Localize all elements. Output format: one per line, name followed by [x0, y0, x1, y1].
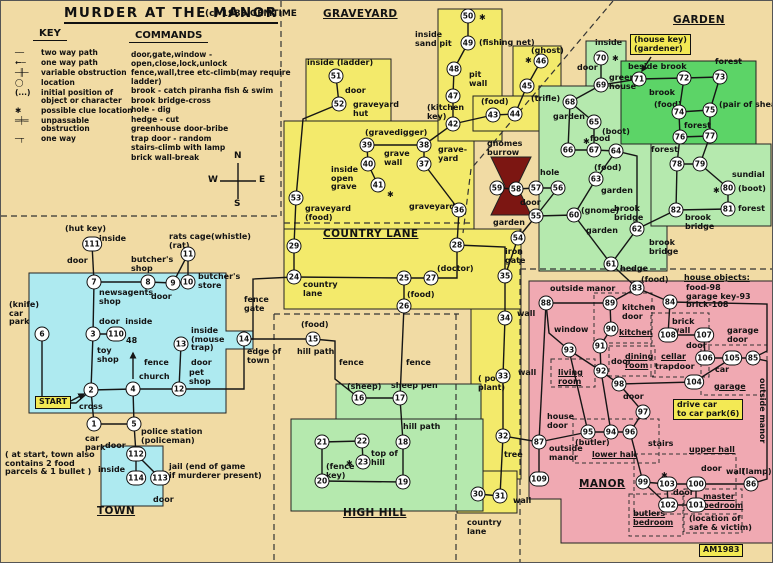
- map-label: inside: [99, 235, 126, 244]
- map-node-111: 111: [82, 237, 102, 252]
- map-node-90: 90: [604, 322, 619, 337]
- map-label: (gravedigger): [365, 129, 427, 138]
- map-label: hill path: [403, 423, 440, 432]
- map-label: kitchen: [619, 329, 652, 338]
- highlight-box: (house key) (gardener): [630, 34, 691, 55]
- map-node-63: 63: [589, 172, 604, 187]
- map-label: (doctor): [437, 265, 474, 274]
- map-node-9: 9: [166, 276, 181, 291]
- map-label: graveyard: [409, 203, 455, 212]
- region-title: COUNTRY LANE: [323, 229, 418, 240]
- key-symbol: ←─: [15, 59, 41, 67]
- map-label: door: [67, 257, 88, 266]
- map-node-97: 97: [636, 405, 651, 420]
- region-title: GRAVEYARD: [323, 9, 398, 20]
- map-node-34: 34: [498, 311, 513, 326]
- map-node-43: 43: [486, 108, 501, 123]
- map-node-27: 27: [424, 271, 439, 286]
- map-node-62: 62: [630, 222, 645, 237]
- map-label: inside sand pit: [415, 31, 452, 48]
- map-node-49: 49: [461, 36, 476, 51]
- map-label: hole: [540, 169, 559, 178]
- map-node-4: 4: [126, 382, 141, 397]
- key-item: (...)initial position of object or chara…: [15, 89, 137, 105]
- map-label: (food): [407, 291, 435, 300]
- highlight-box: drive car to car park(6): [673, 399, 743, 420]
- map-label: lower hall: [592, 451, 636, 460]
- map-label: brook bridge: [614, 205, 643, 222]
- map-node-79: 79: [693, 157, 708, 172]
- region-title: TOWN: [97, 506, 135, 517]
- map-node-112: 112: [126, 447, 146, 462]
- key-item-label: one way: [41, 135, 137, 143]
- map-label: door: [701, 465, 722, 474]
- map-node-70: 70: [594, 51, 609, 66]
- map-label: newsagents shop: [99, 289, 153, 306]
- map-node-12: 12: [172, 382, 187, 397]
- map-label: toy shop: [97, 347, 119, 364]
- map-node-18: 18: [396, 435, 411, 450]
- key-item-label: initial position of object or character: [41, 89, 137, 105]
- map-node-22: 22: [355, 434, 370, 449]
- map-node-23: 23: [356, 455, 371, 470]
- map-node-81: 81: [721, 202, 736, 217]
- compass-north: N: [234, 151, 242, 161]
- map-label: door: [686, 342, 707, 351]
- map-node-3: 3: [86, 327, 101, 342]
- map-label: fence: [339, 359, 364, 368]
- clue-asterisk: ✱: [525, 56, 532, 65]
- map-node-32: 32: [496, 429, 511, 444]
- map-node-11: 11: [181, 247, 196, 262]
- map-node-76: 76: [673, 130, 688, 145]
- map-node-8: 8: [141, 275, 156, 290]
- map-node-80: 80: [721, 181, 736, 196]
- key-symbol: ──: [15, 49, 41, 57]
- map-node-66: 66: [561, 143, 576, 158]
- map-node-95: 95: [581, 425, 596, 440]
- key-item: ──two way path: [15, 49, 137, 57]
- map-label: (knife) car park: [9, 301, 39, 327]
- map-node-55: 55: [529, 209, 544, 224]
- map-node-75: 75: [703, 103, 718, 118]
- map-label: church: [139, 373, 170, 382]
- map-node-85: 85: [746, 351, 761, 366]
- map-node-54: 54: [511, 231, 526, 246]
- map-label: forest: [651, 146, 678, 155]
- map-node-72: 72: [677, 71, 692, 86]
- map-label: forest: [715, 58, 742, 67]
- map-node-82: 82: [669, 203, 684, 218]
- map-node-24: 24: [287, 270, 302, 285]
- map-label: food-98 garage key-93 brick-108: [686, 284, 751, 310]
- map-node-52: 52: [332, 97, 347, 112]
- map-label: car: [715, 366, 729, 375]
- map-label: (boot): [602, 128, 630, 137]
- map-node-10: 10: [181, 275, 196, 290]
- command-line: greenhouse door-bribe: [131, 125, 301, 134]
- map-node-91: 91: [593, 339, 608, 354]
- map-label: (sheep): [347, 383, 381, 392]
- map-node-113: 113: [150, 471, 170, 486]
- map-label: outside manor: [550, 285, 615, 294]
- command-line: brook - catch piranha fish & swim: [131, 87, 301, 96]
- compass-west: W: [208, 175, 218, 185]
- map-label: 48: [126, 337, 137, 346]
- map-node-35: 35: [498, 269, 513, 284]
- command-line: fence,wall,tree etc-climb(may require la…: [131, 69, 301, 86]
- map-label: country lane: [303, 281, 338, 298]
- map-label: forest: [738, 205, 765, 214]
- map-node-30: 30: [471, 487, 486, 502]
- map-node-92: 92: [594, 364, 609, 379]
- game-map: MURDER AT THE MANOR (c) 1983 GEMTIME KEY…: [0, 0, 773, 563]
- map-label: (food): [641, 276, 669, 285]
- map-label: iron gate: [505, 248, 525, 265]
- map-node-29: 29: [287, 239, 302, 254]
- map-node-84: 84: [663, 295, 678, 310]
- command-line: brick wall-break: [131, 154, 301, 163]
- map-label: brook bridge: [649, 239, 678, 256]
- map-label: window: [554, 326, 588, 335]
- map-node-67: 67: [587, 143, 602, 158]
- map-node-5: 5: [127, 417, 142, 432]
- map-node-47: 47: [446, 89, 461, 104]
- map-node-99: 99: [636, 475, 651, 490]
- map-label: pit wall: [469, 71, 487, 88]
- key-item-label: one way path: [41, 59, 137, 67]
- map-node-2: 2: [84, 383, 99, 398]
- map-label: garage door: [727, 327, 759, 344]
- map-label: garden: [586, 227, 618, 236]
- map-label: fence: [144, 359, 169, 368]
- key-item-label: possible clue location: [41, 107, 137, 115]
- map-node-56: 56: [551, 181, 566, 196]
- map-label: hill path: [297, 348, 334, 357]
- map-overlay: MURDER AT THE MANOR (c) 1983 GEMTIME KEY…: [1, 1, 772, 562]
- key-item: ─┬one way: [15, 135, 137, 143]
- map-node-107: 107: [694, 328, 714, 343]
- map-label: top of hill: [371, 450, 398, 467]
- map-label: rats cage(whistle) (rat): [169, 233, 251, 250]
- map-node-73: 73: [713, 70, 728, 85]
- commands-heading: COMMANDS: [129, 30, 208, 43]
- map-node-64: 64: [609, 144, 624, 159]
- map-node-26: 26: [397, 299, 412, 314]
- map-label: inside (ladder): [307, 59, 373, 68]
- map-label: door: [151, 293, 172, 302]
- map-node-15: 15: [306, 332, 321, 347]
- map-node-50: 50: [461, 9, 476, 24]
- map-label: garage: [714, 383, 746, 392]
- map-label: butlers bedroom: [633, 510, 673, 527]
- map-node-36: 36: [452, 203, 467, 218]
- key-symbol: ═╪═: [15, 117, 41, 133]
- map-label: sundial: [732, 171, 765, 180]
- region-title: MANOR: [579, 479, 625, 490]
- map-node-88: 88: [539, 296, 554, 311]
- map-label: trapdoor: [655, 363, 695, 372]
- key-item: ←─one way path: [15, 59, 137, 67]
- key-symbol: ◯: [15, 79, 41, 87]
- region-title: HIGH HILL: [343, 508, 406, 519]
- map-label: inside: [595, 39, 622, 48]
- key-heading: KEY: [33, 28, 67, 41]
- key-item-label: two way path: [41, 49, 137, 57]
- command-line: hole - dig: [131, 106, 301, 115]
- map-node-98: 98: [612, 377, 627, 392]
- map-label: cellar: [661, 353, 686, 362]
- map-node-33: 33: [496, 369, 511, 384]
- command-line: door,gate,window -open,close,lock,unlock: [131, 51, 301, 68]
- map-node-21: 21: [315, 435, 330, 450]
- key-symbol: (...): [15, 89, 41, 105]
- map-label: door: [153, 496, 174, 505]
- commands-list: door,gate,window -open,close,lock,unlock…: [131, 51, 301, 163]
- map-label: wall: [517, 310, 535, 319]
- map-node-101: 101: [686, 498, 706, 513]
- map-node-25: 25: [397, 271, 412, 286]
- map-node-102: 102: [658, 498, 678, 513]
- map-label: master bedroom: [703, 493, 743, 510]
- map-label: country lane: [467, 519, 502, 536]
- highlight-box: START: [35, 396, 71, 409]
- map-node-16: 16: [352, 391, 367, 406]
- map-node-7: 7: [87, 275, 102, 290]
- map-label: graveyard (food): [305, 205, 351, 222]
- key-symbol: ─╫─: [15, 69, 41, 77]
- region-title: GARDEN: [673, 15, 725, 26]
- map-label: (location of safe & victim): [689, 515, 752, 532]
- map-node-105: 105: [722, 351, 742, 366]
- map-node-96: 96: [623, 425, 638, 440]
- map-label: inside: [98, 466, 125, 475]
- map-label: inside (mouse trap): [191, 327, 224, 353]
- map-node-65: 65: [587, 115, 602, 130]
- map-node-39: 39: [360, 138, 375, 153]
- map-node-57: 57: [529, 181, 544, 196]
- map-node-104: 104: [684, 375, 704, 390]
- map-node-58: 58: [509, 182, 524, 197]
- map-label: brook: [649, 89, 675, 98]
- map-node-31: 31: [493, 489, 508, 504]
- map-label: (boot): [738, 185, 766, 194]
- map-node-78: 78: [670, 157, 685, 172]
- map-label: jail (end of game if murderer present): [169, 463, 262, 480]
- map-label: grave wall: [384, 150, 410, 167]
- map-label: (food): [301, 321, 329, 330]
- map-node-59: 59: [490, 181, 505, 196]
- map-label: upper hall: [689, 446, 735, 455]
- map-label: door: [623, 393, 644, 402]
- map-node-114: 114: [126, 471, 146, 486]
- command-line: brook bridge-cross: [131, 97, 301, 106]
- command-line: trap door - random: [131, 135, 301, 144]
- map-label: stairs: [648, 440, 673, 449]
- map-node-69: 69: [594, 78, 609, 93]
- map-label: butcher's store: [198, 273, 240, 290]
- map-node-86: 86: [744, 477, 759, 492]
- copyright-text: (c) 1983 GEMTIME: [205, 9, 297, 19]
- map-node-74: 74: [672, 105, 687, 120]
- map-node-13: 13: [174, 337, 189, 352]
- map-label: fence gate: [244, 296, 269, 313]
- map-label: (fishing net): [479, 39, 535, 48]
- map-label: graveyard hut: [353, 101, 399, 118]
- clue-asterisk: ✱: [612, 54, 619, 63]
- map-label: gnomes burrow: [487, 140, 522, 157]
- map-label: garden: [493, 219, 525, 228]
- map-label: brook bridge: [685, 214, 714, 231]
- map-label: edge of town: [247, 348, 281, 365]
- compass-south: S: [234, 199, 240, 209]
- map-node-44: 44: [508, 107, 523, 122]
- clue-asterisk: ✱: [713, 186, 720, 195]
- map-label: garden: [601, 187, 633, 196]
- map-node-42: 42: [446, 117, 461, 132]
- map-node-60: 60: [567, 208, 582, 223]
- map-label: inside open grave: [331, 166, 358, 192]
- map-node-108: 108: [658, 328, 678, 343]
- map-label: (pair of shears): [719, 101, 773, 110]
- key-item-label: variable obstruction: [41, 69, 137, 77]
- map-label: tree: [504, 451, 523, 460]
- map-node-83: 83: [630, 281, 645, 296]
- key-item: ✱possible clue location: [15, 107, 137, 115]
- key-item: ─╫─variable obstruction: [15, 69, 137, 77]
- map-node-37: 37: [417, 157, 432, 172]
- map-node-94: 94: [604, 425, 619, 440]
- map-node-41: 41: [371, 178, 386, 193]
- map-label: cross: [79, 403, 103, 412]
- map-node-77: 77: [703, 129, 718, 144]
- map-node-20: 20: [315, 474, 330, 489]
- clue-asterisk: ✱: [387, 190, 394, 199]
- map-node-6: 6: [35, 327, 50, 342]
- map-node-28: 28: [450, 238, 465, 253]
- key-legend: ──two way path←─one way path─╫─variable …: [15, 49, 137, 145]
- map-label: (lamp): [742, 468, 772, 477]
- key-symbol: ─┬: [15, 135, 41, 143]
- map-label: butcher's shop: [131, 256, 173, 273]
- map-label: grave- yard: [438, 146, 467, 163]
- key-item-label: unpassable obstruction: [41, 117, 137, 133]
- clue-asterisk: ✱: [346, 459, 353, 468]
- map-node-106: 106: [695, 351, 715, 366]
- map-label: wall: [518, 369, 536, 378]
- map-label: door: [105, 442, 126, 451]
- map-node-48: 48: [447, 62, 462, 77]
- map-node-61: 61: [604, 257, 619, 272]
- map-node-1: 1: [87, 417, 102, 432]
- map-label: sheep pen: [391, 382, 438, 391]
- map-label: fence: [406, 359, 431, 368]
- key-item-label: location: [41, 79, 137, 87]
- map-node-89: 89: [603, 296, 618, 311]
- map-node-100: 100: [686, 477, 706, 492]
- map-label: living room: [558, 369, 583, 386]
- map-label: outside manor: [758, 378, 767, 443]
- map-label: door inside: [99, 318, 152, 327]
- map-label: door: [611, 358, 632, 367]
- map-label: pet shop: [189, 369, 211, 386]
- map-label: hedge: [620, 265, 648, 274]
- map-label: door: [345, 87, 366, 96]
- map-label: outside manor: [549, 445, 583, 462]
- map-label: (trifle): [531, 95, 560, 104]
- key-item: ◯location: [15, 79, 137, 87]
- key-symbol: ✱: [15, 107, 41, 115]
- map-node-45: 45: [520, 79, 535, 94]
- highlight-box: AM1983: [699, 544, 743, 557]
- map-label: house door: [547, 413, 574, 430]
- map-label: (hut key): [65, 225, 106, 234]
- map-label: door: [577, 64, 598, 73]
- map-node-38: 38: [417, 138, 432, 153]
- map-label: wall: [513, 497, 531, 506]
- command-line: hedge - cut: [131, 116, 301, 125]
- clue-asterisk: ✱: [479, 13, 486, 22]
- map-label: police station (policeman): [141, 428, 202, 445]
- map-label: house objects:: [684, 274, 750, 283]
- map-node-46: 46: [534, 54, 549, 69]
- compass-east: E: [259, 175, 265, 185]
- map-node-103: 103: [657, 477, 677, 492]
- map-label: (food): [481, 98, 509, 107]
- map-label: kitchen door: [622, 304, 655, 321]
- map-node-93: 93: [562, 343, 577, 358]
- command-line: stairs-climb with lamp: [131, 144, 301, 153]
- map-node-19: 19: [396, 475, 411, 490]
- map-node-53: 53: [289, 191, 304, 206]
- map-node-87: 87: [532, 435, 547, 450]
- map-label: door: [520, 199, 541, 208]
- map-node-51: 51: [329, 69, 344, 84]
- map-node-110: 110: [106, 327, 126, 342]
- map-label: door: [191, 359, 212, 368]
- map-label: beside brook: [628, 63, 687, 72]
- map-label: garden: [553, 113, 585, 122]
- map-node-40: 40: [361, 157, 376, 172]
- map-node-71: 71: [632, 72, 647, 87]
- key-item: ═╪═unpassable obstruction: [15, 117, 137, 133]
- map-node-109: 109: [529, 472, 549, 487]
- map-node-14: 14: [237, 332, 252, 347]
- map-node-68: 68: [563, 95, 578, 110]
- map-node-17: 17: [393, 391, 408, 406]
- map-label: ( at start, town also contains 2 food pa…: [5, 451, 95, 477]
